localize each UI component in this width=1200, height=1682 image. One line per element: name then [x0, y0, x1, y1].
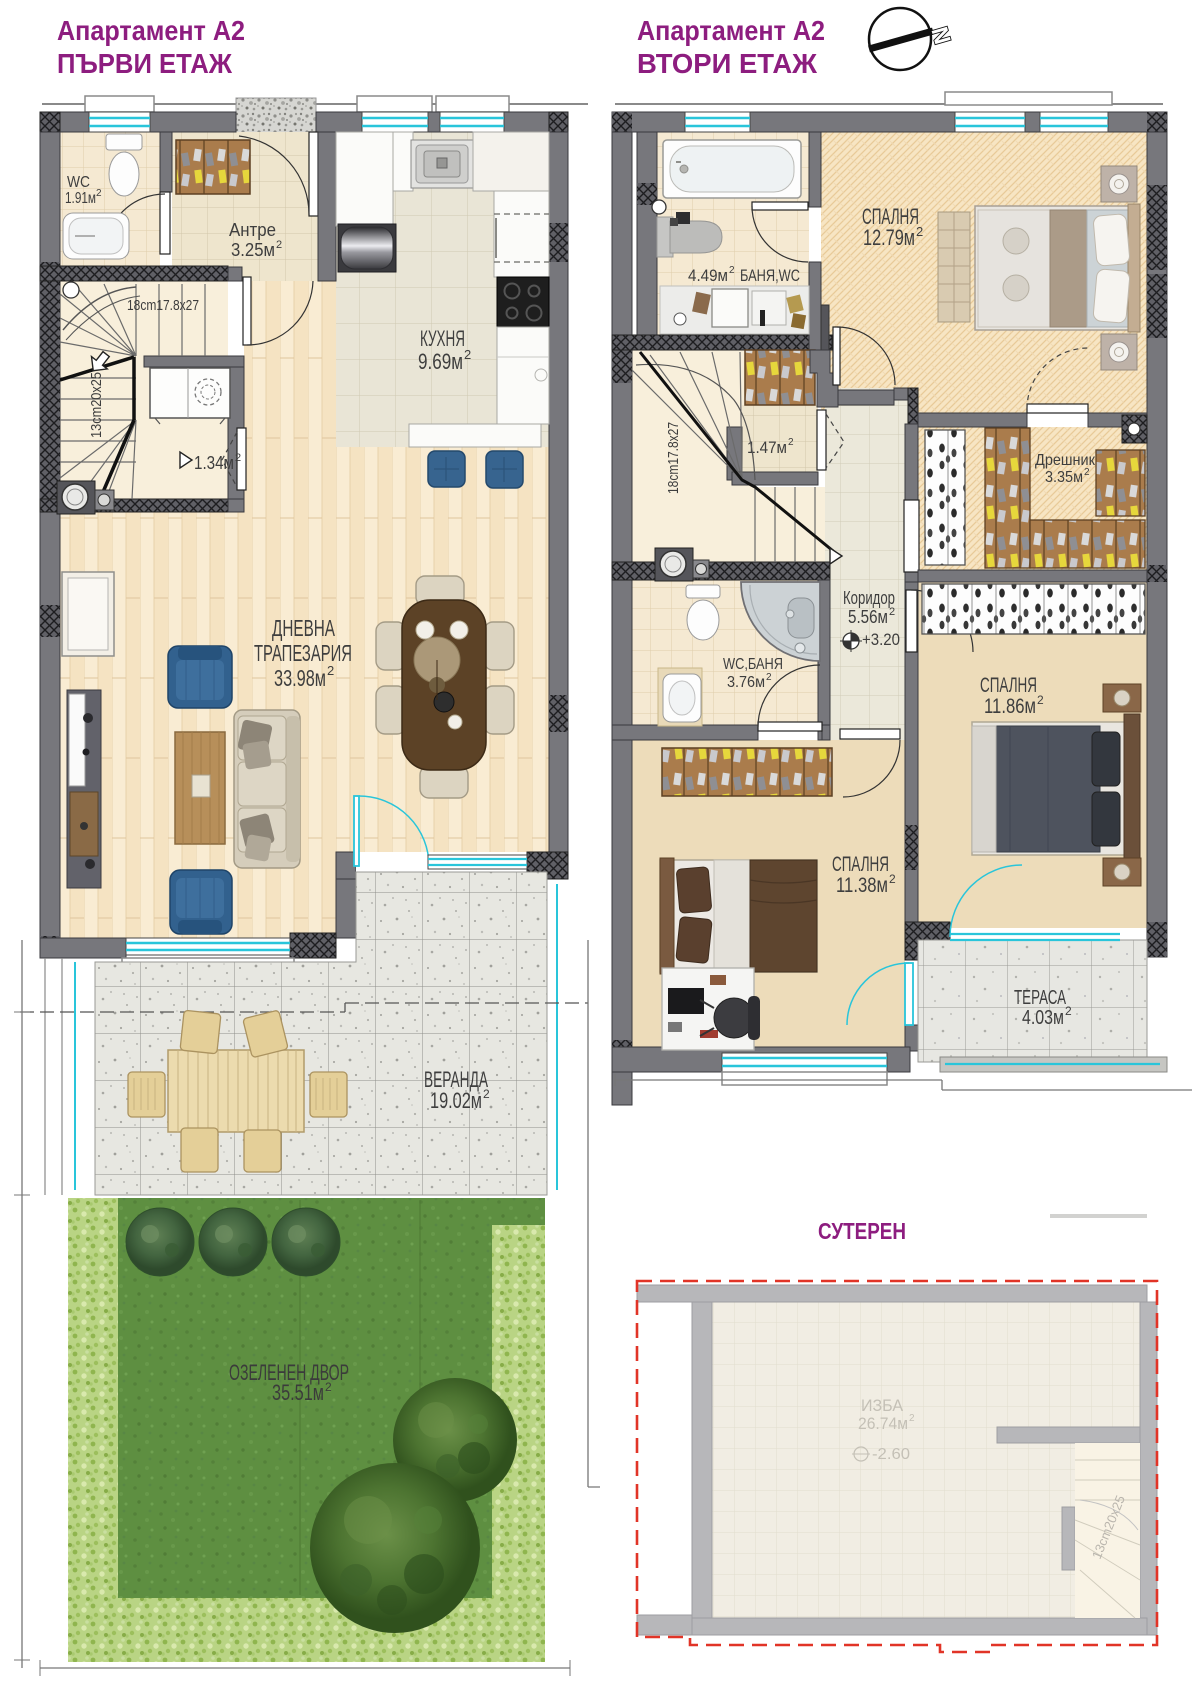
svg-text:Коридор: Коридор: [843, 588, 895, 608]
svg-text:2: 2: [788, 437, 794, 448]
svg-text:4.03м: 4.03м: [1022, 1007, 1064, 1029]
svg-text:Антре: Антре: [229, 220, 276, 240]
svg-text:3.35м: 3.35м: [1045, 469, 1083, 486]
svg-text:5.56м: 5.56м: [848, 607, 888, 627]
svg-text:2: 2: [889, 872, 896, 886]
svg-text:+3.20: +3.20: [862, 630, 900, 649]
svg-text:4.49м: 4.49м: [688, 266, 728, 285]
svg-text:ИЗБА: ИЗБА: [861, 1396, 904, 1415]
svg-text:2: 2: [1084, 467, 1090, 478]
svg-text:СПАЛНЯ: СПАЛНЯ: [980, 674, 1037, 697]
svg-text:ТЕРАСА: ТЕРАСА: [1014, 987, 1066, 1009]
svg-text:26.74м: 26.74м: [858, 1414, 908, 1433]
svg-text:3.76м: 3.76м: [727, 674, 765, 691]
svg-text:СУТЕРЕН: СУТЕРЕН: [818, 1218, 906, 1244]
svg-text:2: 2: [1065, 1004, 1072, 1018]
svg-text:9.69м: 9.69м: [418, 349, 463, 374]
svg-text:БАНЯ,WC: БАНЯ,WC: [740, 266, 800, 285]
svg-text:ВТОРИ ЕТАЖ: ВТОРИ ЕТАЖ: [637, 48, 818, 79]
svg-text:3.25м: 3.25м: [231, 240, 275, 260]
svg-text:СПАЛНЯ: СПАЛНЯ: [832, 853, 889, 876]
svg-text:2: 2: [483, 1087, 490, 1101]
svg-text:1.34м: 1.34м: [194, 453, 234, 473]
svg-text:2: 2: [916, 224, 923, 239]
svg-text:19.02м: 19.02м: [430, 1088, 482, 1113]
svg-text:2: 2: [1037, 693, 1044, 707]
svg-text:2: 2: [96, 188, 102, 199]
svg-text:2: 2: [909, 1413, 915, 1424]
svg-text:2: 2: [325, 1380, 332, 1394]
svg-text:12.79м: 12.79м: [863, 225, 915, 250]
svg-text:WC: WC: [67, 174, 90, 191]
svg-text:11.86м: 11.86м: [984, 695, 1036, 718]
svg-text:18cm17.8x27: 18cm17.8x27: [127, 297, 199, 314]
svg-text:2: 2: [766, 672, 772, 683]
svg-text:2: 2: [327, 663, 334, 678]
svg-text:2: 2: [729, 265, 735, 276]
svg-text:13cm20x25: 13cm20x25: [88, 372, 105, 438]
svg-text:1.91м: 1.91м: [65, 190, 96, 207]
svg-text:18cm17.8x27: 18cm17.8x27: [665, 422, 682, 494]
svg-text:2: 2: [276, 239, 282, 251]
svg-text:ТРАПЕЗАРИЯ: ТРАПЕЗАРИЯ: [254, 640, 352, 666]
svg-text:2: 2: [889, 606, 895, 618]
svg-text:11.38м: 11.38м: [836, 874, 888, 897]
svg-text:WC,БАНЯ: WC,БАНЯ: [723, 656, 783, 673]
svg-text:2: 2: [235, 452, 241, 464]
svg-text:2: 2: [464, 347, 471, 362]
svg-text:КУХНЯ: КУХНЯ: [420, 326, 465, 351]
svg-text:ДНЕВНА: ДНЕВНА: [272, 615, 335, 641]
svg-text:ПЪРВИ ЕТАЖ: ПЪРВИ ЕТАЖ: [57, 48, 233, 79]
svg-text:-2.60: -2.60: [872, 1446, 910, 1463]
svg-text:Апартамент А2: Апартамент А2: [57, 15, 245, 46]
svg-text:35.51м: 35.51м: [272, 1380, 324, 1405]
svg-text:33.98м: 33.98м: [274, 665, 326, 691]
svg-text:Апартамент А2: Апартамент А2: [637, 15, 825, 46]
